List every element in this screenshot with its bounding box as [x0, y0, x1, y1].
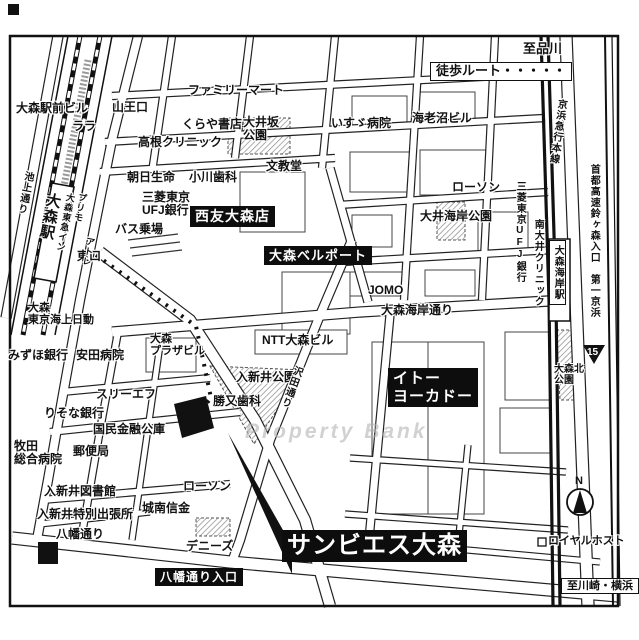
target-sun-bies-omori-label: サンビエス大森: [282, 530, 467, 562]
omori-kita-park-label: 大森北 公園: [554, 364, 584, 386]
yasuda-hospital-label: 安田病院: [76, 349, 124, 362]
daiichi-keihin-expwy-label: 首都高速鈴ヶ森入口 第一京浜: [588, 164, 599, 318]
isuzu-hospital-label: いすゞ病院: [331, 117, 391, 130]
to-shinagawa-label: 至品川: [523, 42, 562, 57]
omori-ekimae-bldg-label: 大森駅前ビル: [16, 102, 88, 115]
jomo-label: JOMO: [368, 284, 403, 297]
keikyu-main-line-label: 京浜急行本線: [547, 98, 567, 165]
jonan-shinkin-label: 城南信金: [142, 502, 190, 515]
post-office-label: 郵便局: [73, 445, 109, 458]
katsumata-dental-label: 勝又歯科: [213, 395, 261, 408]
kokumin-kinyu-koko-label: 国民金融公庫: [93, 423, 165, 436]
to-kawasaki-yokohama-label: 至川崎・横浜: [561, 578, 639, 594]
iriarai-branch-office-label: 入新井特別出張所: [37, 508, 133, 521]
lawson-north-label: ローソン: [452, 181, 500, 194]
familymart-label: ファミリーマート: [188, 84, 284, 97]
watermark-label: Property Bank: [245, 420, 428, 444]
hachiman-dori-entrance-label: 八幡通り入口: [155, 568, 243, 586]
ito-yokado-label: イトー ヨーカドー: [388, 368, 478, 407]
lala-label: ララ: [72, 120, 96, 133]
mizuho-bank-label: みずほ銀行: [8, 349, 68, 362]
mitsubishi-ufj-bank-label: 三菱東京 UFJ銀行: [142, 191, 190, 218]
map-labels: 至品川徒歩ルート・・・・・大森駅前ビルララ山王口ファミリーマートくらや書店大井坂…: [0, 0, 639, 640]
seiyu-omori-label: 西友大森店: [190, 206, 275, 227]
omori-bellport-label: 大森ベルポート: [264, 246, 372, 265]
sanno-exit-label: 山王口: [112, 101, 148, 114]
omori-plaza-bldg-label: 大森 プラザビル: [150, 333, 205, 358]
takane-clinic-label: 高根クリニック: [138, 136, 222, 149]
three-f-label: スリーエフ: [96, 388, 156, 401]
bus-stop-label: バス乗場: [115, 223, 163, 236]
walk-route-legend-label: 徒歩ルート・・・・・: [430, 62, 572, 81]
omori-kaigan-station-label: 大森海岸駅: [549, 240, 566, 305]
route-15-badge-label: 15: [587, 347, 598, 358]
ntt-omori-bldg-label: NTT大森ビル: [262, 334, 333, 347]
lawson-south-label: ローソン: [183, 480, 231, 493]
mitsubishi-ufj-bank-2-label: 三菱東京UFJ銀行: [514, 181, 525, 283]
omori-kaigan-dori-label: 大森海岸通り: [381, 304, 453, 317]
kuraya-books-label: くらや書店: [182, 118, 242, 131]
map-canvas: 至品川徒歩ルート・・・・・大森駅前ビルララ山王口ファミリーマートくらや書店大井坂…: [0, 0, 639, 640]
risona-bank-label: りそな銀行: [44, 407, 104, 420]
iriarai-library-label: 入新井図書館: [44, 485, 116, 498]
makita-general-hospital-label: 牧田 総合病院: [14, 440, 62, 467]
hachiman-dori-label: 八幡通り: [56, 528, 104, 541]
oisaka-park-label: 大井坂 公園: [243, 116, 279, 143]
dennys-label: デニーズ: [186, 540, 233, 553]
compass-n-label: N: [575, 475, 583, 487]
tokio-marine-nichido-label: 大森 東京海上日動: [28, 302, 94, 327]
ikegami-dori-label: 池上通り: [15, 170, 34, 215]
ebinuma-bldg-label: 海老沼ビル: [412, 112, 472, 125]
ogawa-dental-label: 小川歯科: [189, 171, 237, 184]
asahi-seimei-label: 朝日生命: [127, 171, 175, 184]
bunkyodo-label: 文教堂: [266, 160, 302, 173]
oi-kaigan-park-label: 大井海岸公園: [420, 210, 492, 223]
royal-host-label: ロイヤルホスト: [548, 535, 625, 547]
minami-oi-clinic-label: 南大井クリニック: [532, 219, 543, 307]
